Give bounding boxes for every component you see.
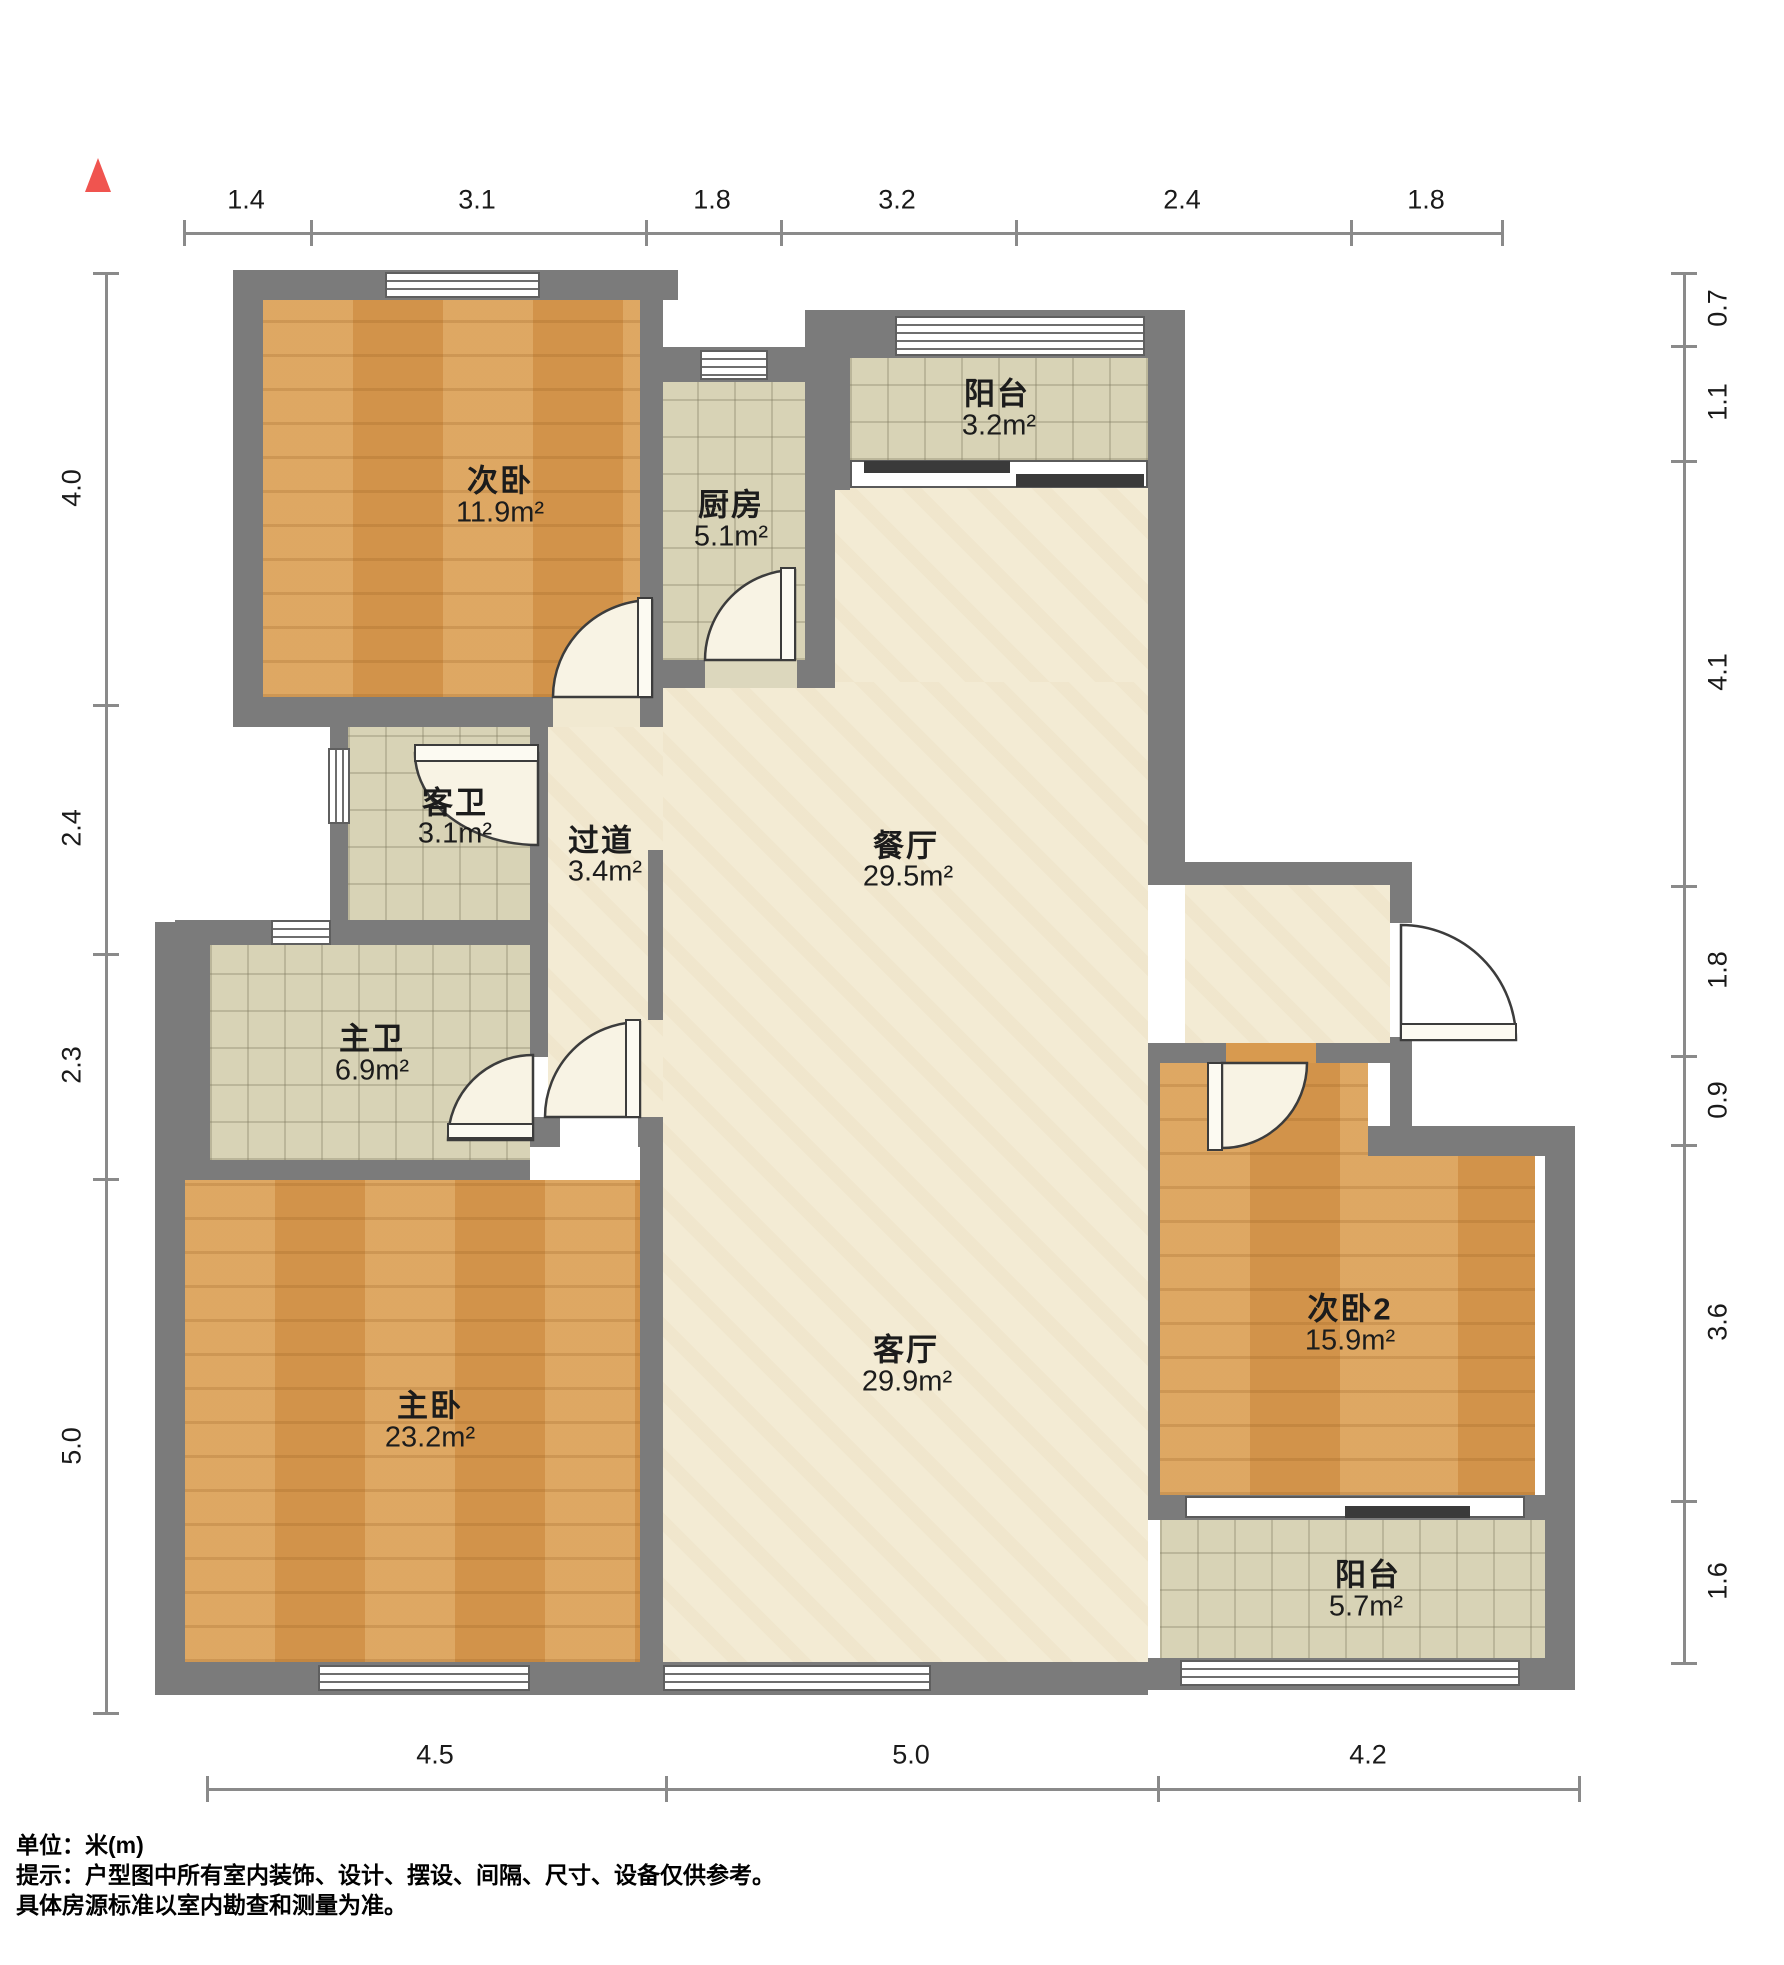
dining-floor-upper [835,486,1148,682]
entry-door [1396,920,1521,1045]
dim-line-top [183,232,1503,235]
dim-right-3: 1.8 [1703,951,1734,989]
balcony-south-area: 5.7m² [1329,1591,1403,1624]
dim-top-5: 1.8 [1407,185,1445,216]
wall-bottom-main [155,1662,1148,1695]
master-bedroom-door [540,1017,645,1122]
dim-tick [1015,220,1018,246]
dim-tick [1671,1662,1697,1665]
dim-top-3: 3.2 [878,185,916,216]
dim-tick [1671,1500,1697,1503]
dim-bottom-1: 5.0 [892,1740,930,1771]
wall-bedroom2-left [233,270,263,727]
guest-bath-label: 客卫 [422,778,488,823]
dim-tick [1501,220,1504,246]
dim-tick [183,220,186,246]
floor-plan-canvas: 次卧 11.9m² 厨房 5.1m² 阳台 3.2m² 客卫 3.1m² 过道 … [0,0,1784,1965]
dim-right-4: 0.9 [1703,1081,1734,1119]
bedroom3-area: 15.9m² [1305,1325,1395,1358]
wall-left-lower-block [155,1180,185,1695]
wall-bedroom3-left [1148,1043,1160,1495]
dim-bottom-2: 4.2 [1349,1740,1387,1771]
dim-tick [310,220,313,246]
balcony-south-window [1180,1660,1520,1686]
dim-line-left [105,272,108,1715]
wall-kitchen-right-lower [805,460,835,688]
dim-tick [780,220,783,246]
sliding-door-leaf-dark [1345,1506,1470,1518]
sliding-door-leaf-dark [1016,474,1144,487]
master-bath-window [271,920,331,945]
dim-left-2: 2.3 [57,1046,88,1084]
kitchen-label: 厨房 [698,480,764,525]
dim-line-right [1683,272,1686,1665]
dim-line-bottom [206,1788,1580,1791]
dim-tick [93,1712,119,1715]
bedroom2-door [550,595,665,705]
master-bedroom-area: 23.2m² [385,1422,475,1455]
living-window [663,1665,931,1691]
balcony-north-area: 3.2m² [962,410,1036,443]
dim-tick [93,1178,119,1181]
bedroom2-window [385,272,540,298]
balcony-south-label: 阳台 [1335,1550,1401,1595]
dining-area: 29.5m² [863,861,953,894]
entry-floor [1185,885,1390,1043]
dim-right-6: 1.6 [1703,1562,1734,1600]
dim-tick [1671,1055,1697,1058]
dim-tick [93,272,119,275]
dim-right-5: 3.6 [1703,1303,1734,1341]
kitchen-window [700,350,768,380]
dim-tick [1671,345,1697,348]
dim-right-0: 0.7 [1703,289,1734,327]
wall-master-bath-top [175,920,530,945]
dim-tick [665,1776,668,1802]
dim-tick [1671,1144,1697,1147]
wall-right-lower [1545,1126,1575,1690]
notice-line2: 具体房源标准以室内勘查和测量为准。 [16,1886,407,1920]
notice-line1: 提示：户型图中所有室内装饰、设计、摆设、间隔、尺寸、设备仅供参考。 [16,1856,775,1890]
bedroom2-label: 次卧 [467,456,533,501]
dim-top-1: 3.1 [458,185,496,216]
dim-tick [93,704,119,707]
bedroom3-label: 次卧2 [1307,1284,1392,1329]
living-area: 29.9m² [862,1366,952,1399]
unit-note: 单位：米(m) [16,1826,144,1860]
guest-bath-area: 3.1m² [418,818,492,851]
wall-entry-top [1148,862,1412,885]
master-bedroom-window [318,1665,530,1691]
dim-right-2: 4.1 [1703,653,1734,691]
dim-top-2: 1.8 [693,185,731,216]
master-bedroom-label: 主卧 [397,1381,463,1426]
dim-tick [1350,220,1353,246]
hallway-area: 3.4m² [568,856,642,889]
dim-tick [1671,272,1697,275]
dim-bottom-0: 4.5 [416,1740,454,1771]
wall-bedroom3-notch [1368,1126,1575,1156]
kitchen-door [700,565,800,665]
wall-hallway-dining [648,850,663,1020]
master-bath-area: 6.9m² [335,1055,409,1088]
wall-master-living-partition [640,1117,663,1662]
wall-entry-right-upper [1390,885,1412,923]
dim-tick [1157,1776,1160,1802]
dim-tick [645,220,648,246]
dim-left-1: 2.4 [57,809,88,847]
guest-bath-window [328,748,350,824]
master-bath-label: 主卫 [339,1014,405,1059]
hallway-label: 过道 [568,816,634,861]
dim-tick [206,1776,209,1802]
dim-tick [1578,1776,1581,1802]
dim-tick [1671,460,1697,463]
dim-tick [93,953,119,956]
dim-tick [1671,885,1697,888]
dim-top-0: 1.4 [227,185,265,216]
bedroom3-door [1200,1058,1315,1158]
wall-right-upper [1148,310,1185,885]
dim-top-4: 2.4 [1163,185,1201,216]
living-label: 客厅 [873,1325,939,1370]
kitchen-area: 5.1m² [694,521,768,554]
dining-label: 餐厅 [873,821,939,866]
balcony-north-label: 阳台 [964,369,1030,414]
bedroom2-area: 11.9m² [456,497,544,530]
wall-left-upper-block [155,922,210,1180]
dim-left-0: 4.0 [57,469,88,507]
wall-master-bath-bottom [155,1160,530,1180]
sliding-door-leaf-dark [864,461,1010,473]
dim-right-1: 1.1 [1703,383,1734,421]
north-arrow-icon [85,158,111,192]
dim-left-3: 5.0 [57,1427,88,1465]
balcony-north-window [895,316,1145,356]
master-bath-door [443,1050,538,1145]
